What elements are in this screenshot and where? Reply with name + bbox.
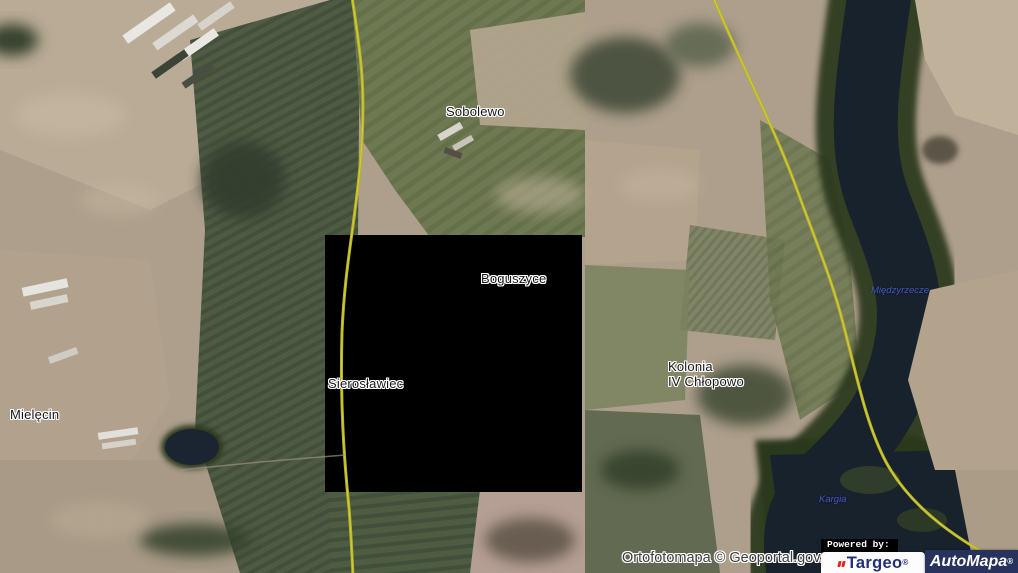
automapa-logo[interactable]: AutoMapa ® [925,550,1018,573]
targeo-logo-text: Targeo [847,555,903,571]
water-label-river: Międzyrzecze [871,285,929,296]
place-label-sobolewo: Sobolewo [446,104,505,119]
satellite-imagery [0,0,1018,573]
branding-area: Powered by: Targeo ® AutoMapa ® [821,539,1018,573]
place-label-sieroslawiec: Sierosławiec [328,376,403,391]
map-attribution: Ortofotomapa © Geoportal.gov.pl [622,550,835,566]
place-label-boguszyce: Boguszyce [481,271,546,286]
powered-by-label: Powered by: [821,539,898,552]
targeo-registered-mark: ® [902,558,908,567]
targeo-logo[interactable]: Targeo ® [821,552,925,573]
place-label-kolonia-iv-chlopowo: Kolonia IV Chłopowo [668,359,744,389]
automapa-registered-mark: ® [1007,557,1013,566]
place-label-mielecin: Mielęcin [10,407,59,422]
targeo-stack: Powered by: Targeo ® [821,539,925,573]
automapa-logo-text: AutoMapa [930,554,1007,570]
place-label-line2: IV Chłopowo [668,374,744,389]
map-viewport[interactable]: Sobolewo Boguszyce Sierosławiec Kolonia … [0,0,1018,573]
targeo-quote-icon [838,554,846,572]
water-label-lake: Kargia [819,494,846,505]
place-label-line1: Kolonia [668,359,744,374]
